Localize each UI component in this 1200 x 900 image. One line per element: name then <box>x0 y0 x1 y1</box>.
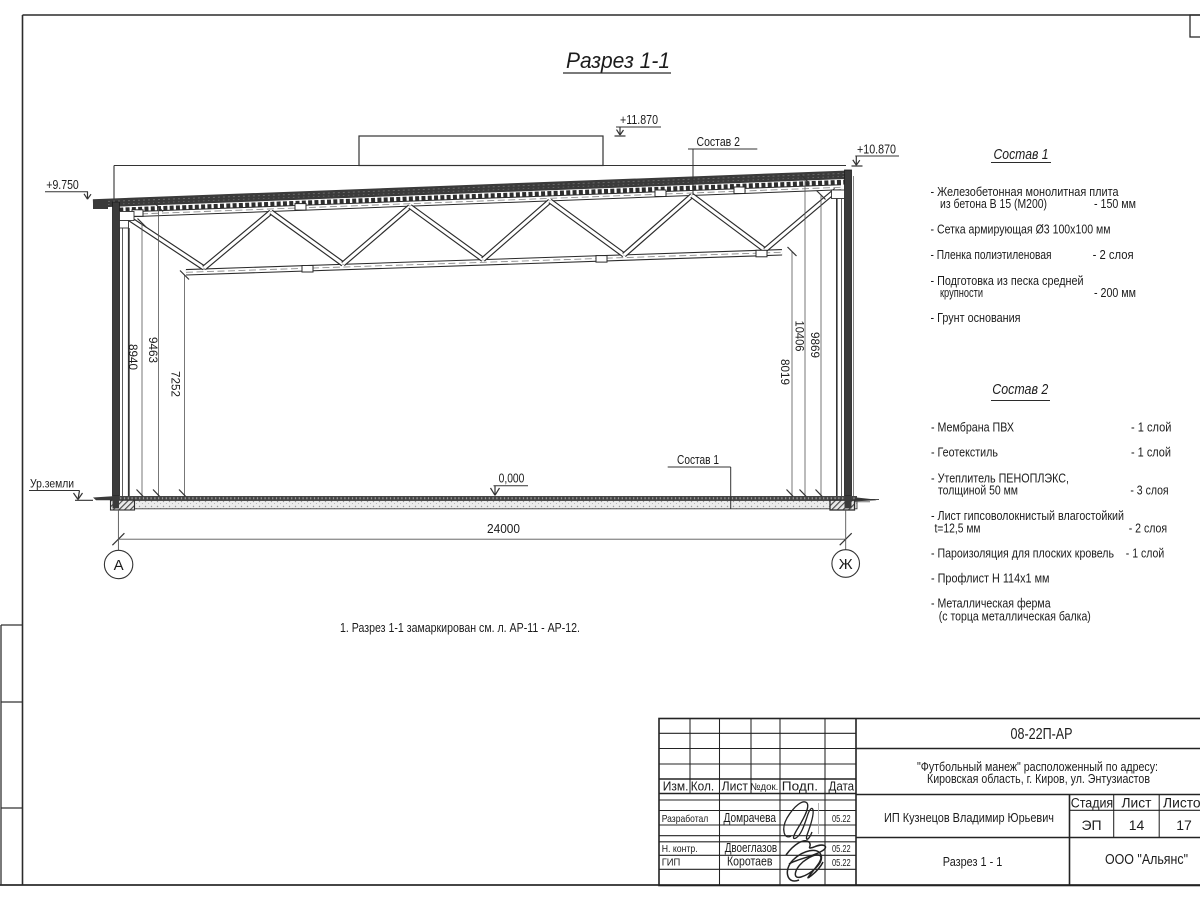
svg-text:+9.750: +9.750 <box>46 178 79 192</box>
svg-text:крупности: крупности <box>940 285 983 300</box>
svg-text:А: А <box>114 557 124 574</box>
svg-text:Подп.: Подп. <box>782 780 818 794</box>
svg-text:Разрез 1 - 1: Разрез 1 - 1 <box>943 855 1003 869</box>
svg-text:Состав 2: Состав 2 <box>992 382 1048 398</box>
svg-text:Изм.: Изм. <box>663 780 689 794</box>
svg-text:17: 17 <box>1176 817 1192 833</box>
svg-text:- 150 мм: - 150 мм <box>1094 196 1136 211</box>
svg-text:08-22П-АР: 08-22П-АР <box>1011 726 1073 743</box>
svg-text:24000: 24000 <box>487 522 520 536</box>
svg-text:+10.870: +10.870 <box>857 143 896 157</box>
svg-text:(с торца металлическая балка): (с торца металлическая балка) <box>939 609 1091 624</box>
svg-text:- Мембрана ПВХ: - Мембрана ПВХ <box>931 420 1014 435</box>
svg-text:Листов: Листов <box>1163 796 1200 811</box>
svg-text:Ж: Ж <box>839 556 853 573</box>
svg-text:Коротаев: Коротаев <box>727 855 773 869</box>
svg-text:- 200 мм: - 200 мм <box>1094 285 1136 300</box>
svg-text:- Геотекстиль: - Геотекстиль <box>931 445 998 460</box>
svg-text:05.22: 05.22 <box>832 843 851 855</box>
svg-text:7252: 7252 <box>169 371 181 397</box>
svg-text:9869: 9869 <box>808 332 820 358</box>
svg-text:14: 14 <box>1129 817 1145 833</box>
svg-text:0,000: 0,000 <box>499 472 525 486</box>
svg-text:9463: 9463 <box>146 337 158 363</box>
svg-text:Лист: Лист <box>1122 796 1152 811</box>
svg-text:05.22: 05.22 <box>832 857 851 869</box>
svg-text:Двоеглазов: Двоеглазов <box>725 841 778 855</box>
svg-text:Состав 1: Состав 1 <box>677 453 719 467</box>
svg-text:8940: 8940 <box>126 344 138 370</box>
svg-text:Стадия: Стадия <box>1071 796 1114 811</box>
svg-text:ЭП: ЭП <box>1081 817 1101 833</box>
svg-text:- 2 слоя: - 2 слоя <box>1129 521 1167 536</box>
svg-text:из бетона В 15 (М200): из бетона В 15 (М200) <box>940 196 1047 211</box>
svg-text:- 2 слоя: - 2 слоя <box>1093 247 1134 262</box>
svg-text:1. Разрез 1-1 замаркирован см.: 1. Разрез 1-1 замаркирован см. л. АР-11 … <box>340 621 580 635</box>
svg-text:Ур.земли: Ур.земли <box>30 477 74 491</box>
svg-text:10406: 10406 <box>793 321 805 352</box>
svg-text:- 1 слой: - 1 слой <box>1131 445 1171 460</box>
svg-text:- Профлист Н 114х1 мм: - Профлист Н 114х1 мм <box>931 571 1050 586</box>
svg-text:- Пленка полиэтиленовая: - Пленка полиэтиленовая <box>931 247 1052 262</box>
svg-text:толщиной 50 мм: толщиной 50 мм <box>938 483 1018 498</box>
svg-text:Разработал: Разработал <box>662 813 709 825</box>
svg-text:Состав 2: Состав 2 <box>697 135 741 149</box>
svg-text:ГИП: ГИП <box>662 857 681 869</box>
svg-text:- 1 слой: - 1 слой <box>1126 546 1164 561</box>
svg-text:05.22: 05.22 <box>832 813 851 825</box>
svg-text:- Грунт основания: - Грунт основания <box>931 310 1021 325</box>
svg-text:Дата: Дата <box>829 780 855 794</box>
svg-text:- Пароизоляция для плоских кро: - Пароизоляция для плоских кровель <box>931 546 1114 561</box>
svg-text:ИП Кузнецов Владимир Юрьевич: ИП Кузнецов Владимир Юрьевич <box>884 810 1054 825</box>
svg-text:Разрез 1-1: Разрез 1-1 <box>566 48 670 73</box>
svg-text:ООО "Альянс": ООО "Альянс" <box>1105 852 1188 868</box>
svg-text:Состав 1: Состав 1 <box>994 147 1049 163</box>
svg-text:Кол.: Кол. <box>691 780 714 794</box>
svg-text:+11.870: +11.870 <box>620 113 658 127</box>
svg-text:№док.: №док. <box>750 782 778 793</box>
svg-text:Домрачева: Домрачева <box>724 811 777 825</box>
svg-text:- 1 слой: - 1 слой <box>1131 420 1171 435</box>
svg-text:t=12,5 мм: t=12,5 мм <box>935 521 981 536</box>
svg-text:- 3 слоя: - 3 слоя <box>1130 483 1168 498</box>
svg-text:Н. контр.: Н. контр. <box>662 843 698 855</box>
svg-text:Лист: Лист <box>722 780 749 794</box>
svg-text:- Сетка армирующая Ø3 100х100: - Сетка армирующая Ø3 100х100 мм <box>931 222 1111 237</box>
svg-text:8019: 8019 <box>778 359 790 385</box>
svg-text:Кировская область, г. Киров, у: Кировская область, г. Киров, ул. Энтузиа… <box>927 771 1150 786</box>
